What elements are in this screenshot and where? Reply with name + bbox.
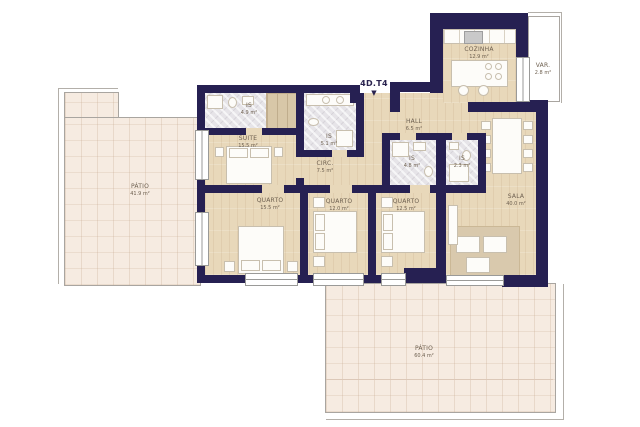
quarto2-pillow — [315, 233, 325, 250]
room-label-circ: CIRC. 7.5 m² — [308, 160, 342, 174]
dining-chair — [481, 121, 491, 130]
sink-mid — [308, 118, 319, 126]
room-label-quarto3: QUARTO 12.5 m² — [381, 198, 431, 212]
room-label-is-social: IS 2.3 m² — [447, 155, 477, 169]
wall-bathroom-hall-left — [382, 133, 390, 193]
dining-chair — [523, 163, 533, 172]
property-line-right-upper — [561, 12, 562, 103]
room-name: CIRC. — [317, 160, 334, 167]
room-area: 2.8 m² — [529, 70, 557, 77]
room-area: 41.9 m² — [110, 191, 170, 198]
wall-right-exterior — [536, 100, 548, 287]
room-name: QUARTO — [326, 198, 353, 205]
window-sala-patio — [446, 275, 504, 286]
room-label-patio-left: PÁTIO 41.9 m² — [110, 183, 170, 197]
quarto2-pillow — [315, 214, 325, 231]
room-label-quarto1: QUARTO 15.5 m² — [245, 197, 295, 211]
wall-bottom-3 — [362, 275, 381, 283]
dryer-icon — [336, 96, 344, 104]
wall-bottom-2 — [296, 275, 313, 283]
laundry-counter — [306, 94, 354, 106]
room-label-is-suite: IS 4.9 m² — [236, 102, 262, 116]
room-label-is-hall: IS 4.8 m² — [397, 155, 427, 169]
kitchen-stool — [458, 85, 469, 96]
cooktop-burner — [485, 63, 492, 70]
quarto3-pillow — [383, 214, 393, 231]
kitchen-stool — [478, 85, 489, 96]
patio-left-floor-upper — [64, 92, 119, 120]
room-area: 15.5 m² — [245, 205, 295, 212]
window-quarto-2 — [313, 273, 364, 286]
window-quarto-3 — [381, 273, 406, 286]
quarto2-nightstand — [313, 256, 325, 267]
room-name: SUITE — [239, 135, 257, 142]
property-line-right-lower — [563, 284, 564, 420]
room-name: IS — [409, 155, 415, 162]
sink-hall-bath — [413, 142, 426, 151]
property-line-bottom — [326, 419, 564, 420]
room-area: 40.0 m² — [496, 201, 536, 208]
cooktop-burner — [495, 73, 502, 80]
window-suite — [195, 130, 209, 180]
unit-label: 4D.T4 — [356, 79, 392, 88]
wall-bathroom-mid-right — [356, 93, 364, 157]
room-name: QUARTO — [257, 197, 284, 204]
dining-chair — [523, 121, 533, 130]
room-label-is-mid: IS 5.1 m² — [314, 133, 344, 147]
room-area: 12.5 m² — [381, 206, 431, 213]
room-name: IS — [326, 133, 332, 140]
wall-suite-circ-upper — [296, 93, 304, 153]
quarto1-nightstand — [287, 261, 298, 272]
quarto1-pillow — [241, 260, 260, 271]
room-area: 12.9 m² — [454, 54, 504, 61]
door-quarto-1 — [262, 185, 284, 193]
room-name: PÁTIO — [131, 183, 149, 190]
quarto3-closet — [381, 256, 393, 267]
property-line-topright — [528, 12, 562, 13]
sofa-cushion — [456, 236, 480, 253]
wall-kitchen-top — [430, 13, 528, 29]
suite-pillow — [229, 148, 248, 158]
property-line-left — [58, 88, 59, 284]
room-label-varanda: VAR. 2.8 m² — [529, 62, 557, 76]
door-bathroom-hall — [400, 133, 416, 140]
wall-bottom-5 — [502, 275, 548, 287]
balcony-floor — [528, 16, 560, 102]
kitchen-sink — [464, 31, 483, 44]
room-label-patio-bottom: PÁTIO 60.4 m² — [399, 345, 449, 359]
wall-bathroom-social-right — [478, 133, 486, 193]
sofa-cushion — [483, 236, 507, 253]
patio-left-floor — [64, 117, 201, 286]
room-name: VAR. — [536, 62, 551, 69]
shower-suite — [207, 95, 223, 109]
dining-table — [492, 118, 522, 174]
patio-bottom-paving-line — [326, 379, 553, 380]
sink-social-bath — [449, 142, 459, 150]
wall-quarto3-sala — [436, 133, 446, 275]
room-area: 2.3 m² — [447, 163, 477, 170]
cooktop-burner — [495, 63, 502, 70]
quarto3-pillow — [383, 233, 393, 250]
room-name: IS — [246, 102, 252, 109]
door-bathroom-mid — [332, 150, 347, 157]
dining-chair — [523, 135, 533, 144]
room-area: 4.8 m² — [397, 163, 427, 170]
cooktop-burner — [485, 73, 492, 80]
room-area: 60.4 m² — [399, 353, 449, 360]
wall-quarto2-quarto3 — [368, 193, 376, 275]
room-name: PÁTIO — [415, 345, 433, 352]
quarto1-nightstand — [224, 261, 235, 272]
room-name: HALL — [406, 118, 422, 125]
wall-top-west — [197, 85, 360, 93]
door-bathroom-suite — [246, 128, 262, 135]
window-quarto-1 — [245, 273, 298, 286]
wall-kitchen-sala — [468, 102, 536, 112]
room-area: 5.1 m² — [314, 141, 344, 148]
room-label-suite: SUITE 15.5 m² — [220, 135, 276, 149]
door-quarto-3 — [410, 185, 430, 193]
room-name: COZINHA — [464, 46, 493, 53]
room-label-hall: HALL 6.5 m² — [395, 118, 433, 132]
suite-pillow — [250, 148, 269, 158]
floor-plan: 4D.T4 ▼ PÁTIO 41.9 m² SUITE 15.5 m² IS 4… — [0, 0, 640, 427]
room-area: 7.5 m² — [308, 168, 342, 175]
wall-quarto1-quarto2 — [300, 193, 308, 275]
room-label-cozinha: COZINHA 12.9 m² — [454, 46, 504, 60]
room-area: 4.9 m² — [236, 110, 262, 117]
property-line-top — [58, 88, 118, 89]
door-quarto-2 — [330, 185, 352, 193]
door-bathroom-social — [452, 133, 467, 140]
wall-bathroom-mid — [296, 150, 364, 157]
wall-bottom-1 — [197, 275, 245, 283]
wall-kitchen-right — [516, 13, 528, 57]
room-label-quarto2: QUARTO 12.0 m² — [314, 198, 364, 212]
window-balcony-door — [516, 57, 530, 102]
room-area: 6.5 m² — [395, 126, 433, 133]
dining-chair — [523, 149, 533, 158]
tv-console — [448, 205, 458, 245]
room-name: SALA — [508, 193, 524, 200]
sofa-chaise — [466, 257, 490, 273]
window-quarto-1-side — [195, 212, 209, 266]
suite-wardrobe — [266, 93, 298, 131]
room-label-sala: SALA 40.0 m² — [496, 193, 536, 207]
entry-arrow-icon: ▼ — [366, 90, 382, 97]
room-name: IS — [459, 155, 465, 162]
room-area: 12.0 m² — [314, 206, 364, 213]
wall-entry-stub-east — [390, 92, 400, 112]
room-area: 15.5 m² — [220, 143, 276, 150]
wall-bathrooms-top — [382, 133, 486, 140]
quarto1-pillow — [262, 260, 281, 271]
room-name: QUARTO — [393, 198, 420, 205]
washer-icon — [322, 96, 330, 104]
